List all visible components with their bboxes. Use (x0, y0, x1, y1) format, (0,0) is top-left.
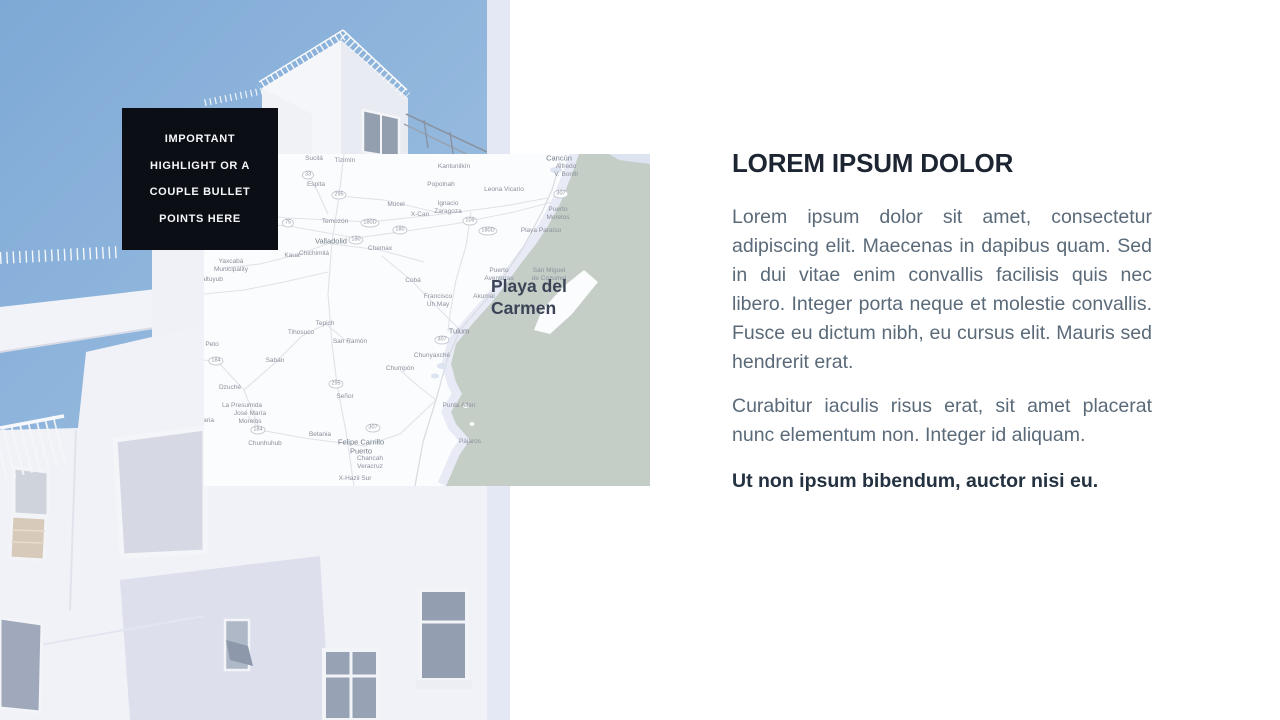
emphasis-line: Ut non ipsum bibendum, auctor nisi eu. (732, 467, 1152, 496)
window (0, 618, 42, 712)
highlight-line: POINTS HERE (122, 206, 278, 233)
map-road-shield: 180D (360, 219, 379, 228)
body-paragraph: Lorem ipsum dolor sit amet, consectetur … (732, 203, 1152, 377)
map-road-shield: 75 (282, 219, 294, 228)
slide-title: LOREM IPSUM DOLOR (732, 148, 1152, 179)
window (420, 590, 467, 680)
body-paragraph: Curabitur iaculis risus erat, sit amet p… (732, 392, 1152, 450)
highlight-line: IMPORTANT (122, 126, 278, 153)
destination-label: Playa del Carmen (491, 275, 581, 320)
map-road-shield: 180D (478, 227, 497, 236)
facade-panel (115, 428, 205, 556)
presentation-slide: IMPORTANT HIGHLIGHT OR A COUPLE BULLET P… (0, 0, 1280, 720)
window (14, 468, 48, 516)
highlight-line: COUPLE BULLET (122, 179, 278, 206)
highlight-box: IMPORTANT HIGHLIGHT OR A COUPLE BULLET P… (122, 108, 278, 250)
map-road-shield: 33 (302, 171, 314, 180)
highlight-line: HIGHLIGHT OR A (122, 153, 278, 180)
slide-content: LOREM IPSUM DOLOR Lorem ipsum dolor sit … (732, 148, 1152, 511)
window-blinds (10, 516, 46, 560)
